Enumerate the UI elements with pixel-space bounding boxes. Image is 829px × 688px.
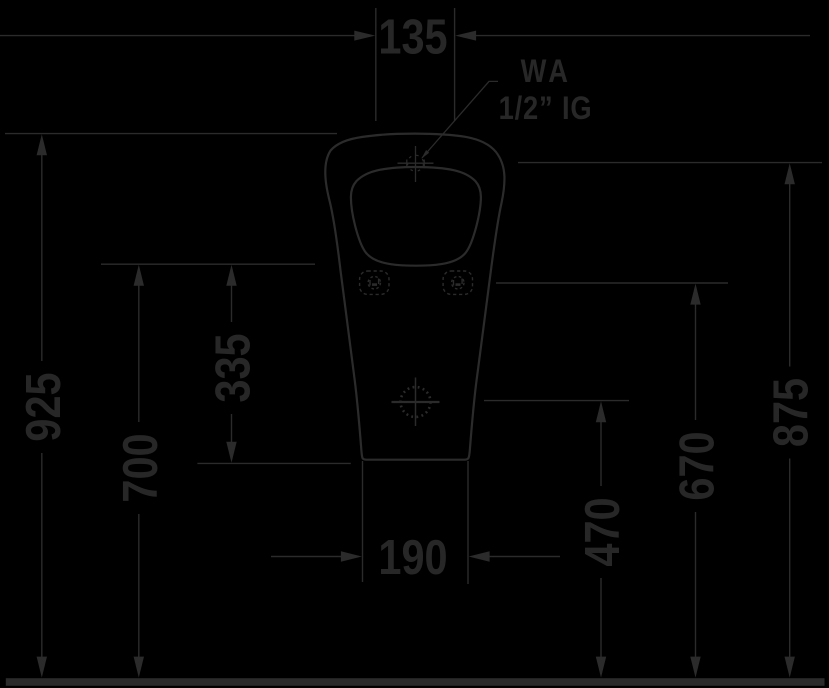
- svg-text:335: 335: [205, 333, 260, 402]
- svg-text:925: 925: [15, 372, 70, 441]
- svg-text:1/2” IG: 1/2” IG: [499, 91, 593, 127]
- svg-text:470: 470: [575, 497, 630, 566]
- svg-text:875: 875: [763, 378, 818, 447]
- svg-text:135: 135: [378, 9, 447, 64]
- svg-text:WA: WA: [521, 54, 572, 90]
- svg-text:190: 190: [378, 530, 447, 585]
- svg-text:700: 700: [112, 433, 167, 502]
- svg-text:670: 670: [669, 431, 724, 500]
